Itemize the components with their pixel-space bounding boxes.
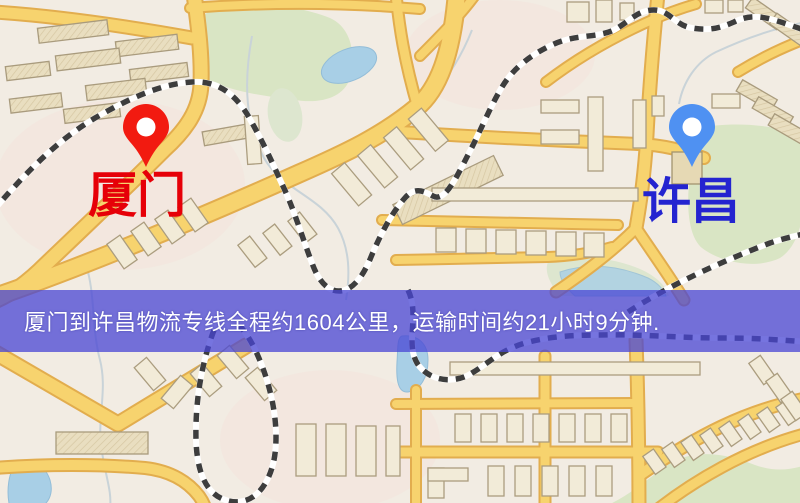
red-pin-hole <box>137 118 156 137</box>
route-caption-banner: 厦门到许昌物流专线全程约1604公里，运输时间约21小时9分钟. <box>0 290 800 352</box>
blue-pin-hole <box>683 118 702 137</box>
route-caption-text: 厦门到许昌物流专线全程约1604公里，运输时间约21小时9分钟. <box>24 305 660 337</box>
destination-city-label: 许昌 <box>642 178 740 227</box>
map-screenshot: 厦门 许昌 厦门到许昌物流专线全程约1604公里，运输时间约21小时9分钟. <box>0 0 800 503</box>
map-canvas[interactable] <box>0 0 800 503</box>
origin-city-label: 厦门 <box>88 172 186 221</box>
